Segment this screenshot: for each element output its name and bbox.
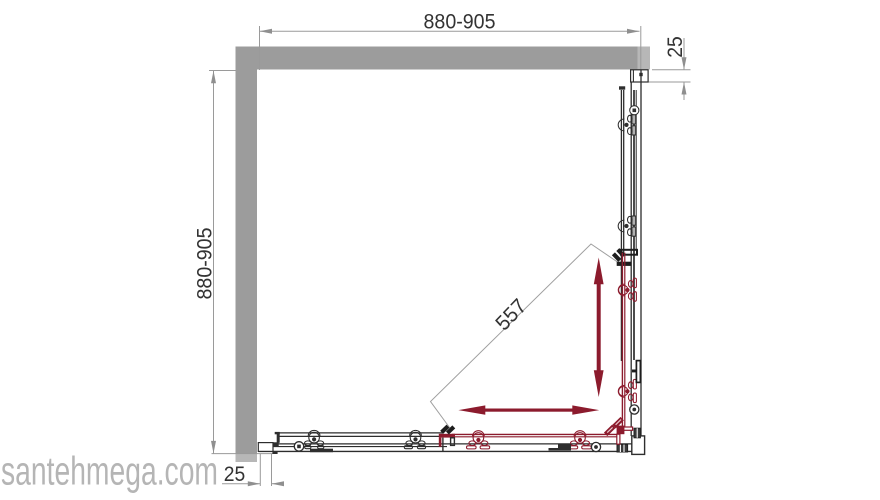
svg-text:880-905: 880-905 [194,228,217,300]
svg-text:25: 25 [224,463,246,486]
svg-text:25: 25 [664,36,687,58]
svg-text:880-905: 880-905 [424,10,496,33]
svg-text:santehmega.com: santehmega.com [1,450,218,494]
